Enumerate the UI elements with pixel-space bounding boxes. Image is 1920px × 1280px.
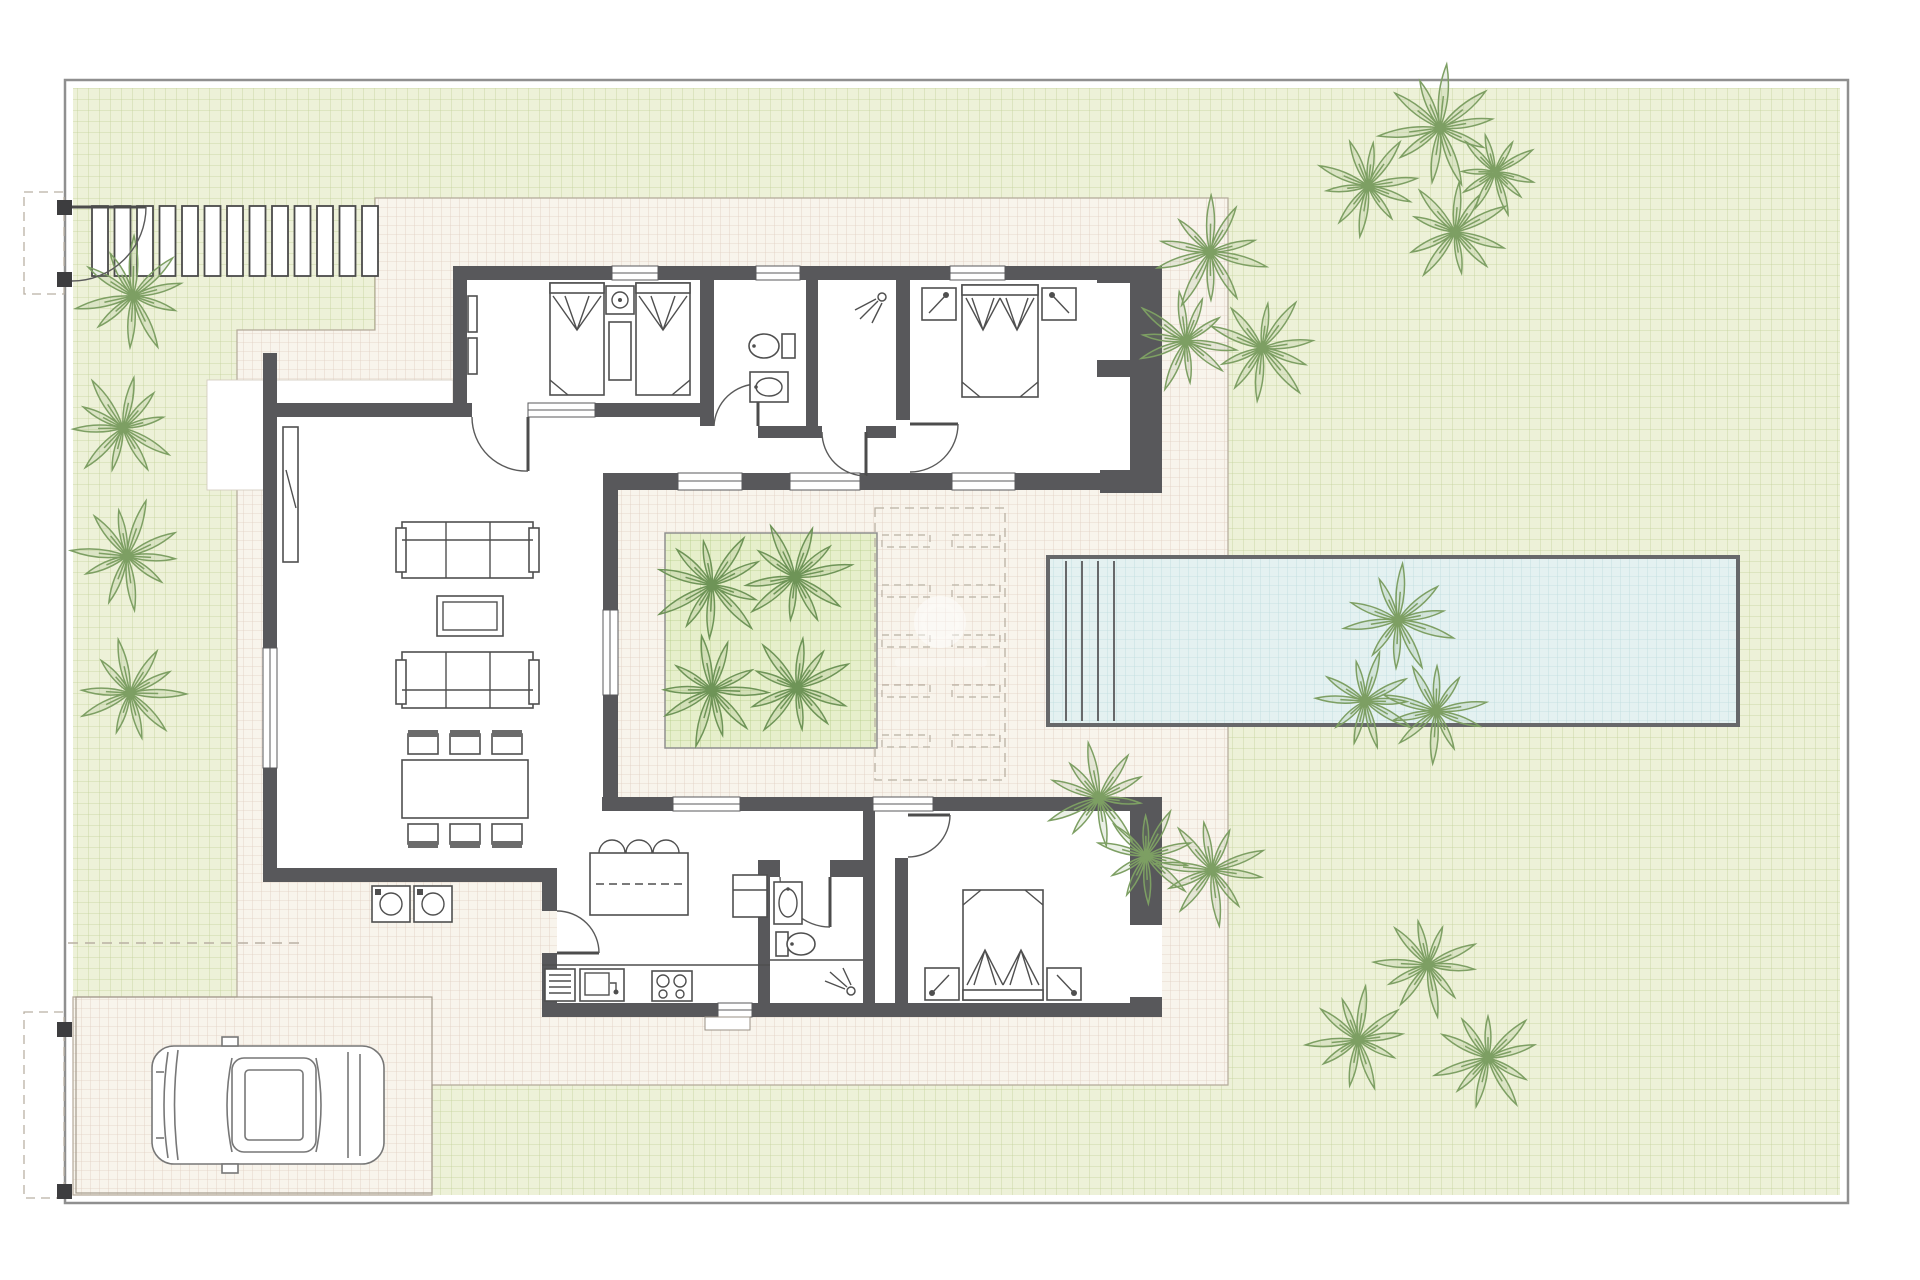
washer-icon [372, 886, 410, 922]
floor-plan-page [0, 0, 1920, 1280]
villa-floor-plan [0, 0, 1920, 1280]
pergola-slat [272, 206, 288, 276]
sink-icon [774, 882, 802, 924]
pergola-slat [182, 206, 198, 276]
pergola-slat [295, 206, 311, 276]
pergola-slat [92, 206, 108, 276]
washer-icon [414, 886, 452, 922]
pergola-slat [340, 206, 356, 276]
dining-table [402, 730, 528, 848]
nightstand-lamp [922, 288, 956, 320]
nightstand-lamp [1042, 288, 1076, 320]
toilet-icon [749, 334, 795, 358]
nightstand-lamp [1047, 968, 1081, 1000]
hob-icon [652, 971, 692, 1001]
tv-unit [283, 427, 298, 562]
exterior-step [705, 1017, 750, 1030]
pergola-slat [205, 206, 221, 276]
pergola-slat [250, 206, 266, 276]
nightstand-lamp [925, 968, 959, 1000]
pergola-slat [227, 206, 243, 276]
sink-icon [750, 372, 788, 402]
dishwasher-icon [545, 969, 575, 1001]
toilet-icon [776, 932, 815, 956]
pergola-slat [362, 206, 378, 276]
sofa [396, 522, 539, 578]
runner-rug [609, 322, 631, 380]
car-top-view [152, 1037, 384, 1173]
fridge-icon [733, 875, 767, 917]
kitchen-sink-icon [580, 969, 624, 1001]
pergola-slat [317, 206, 333, 276]
sofa [396, 652, 539, 708]
